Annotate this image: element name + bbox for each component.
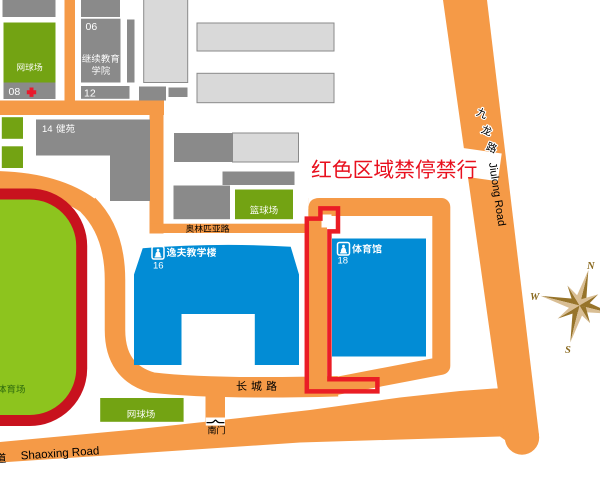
svg-text:N: N [586,261,595,272]
svg-text:12: 12 [84,88,96,100]
svg-text:16: 16 [153,260,164,271]
svg-text:06: 06 [86,21,98,33]
svg-text:W: W [530,292,540,303]
svg-text:18: 18 [338,256,349,267]
svg-text:14: 14 [42,124,53,135]
svg-text:08: 08 [9,86,21,98]
svg-text:S: S [565,345,571,356]
